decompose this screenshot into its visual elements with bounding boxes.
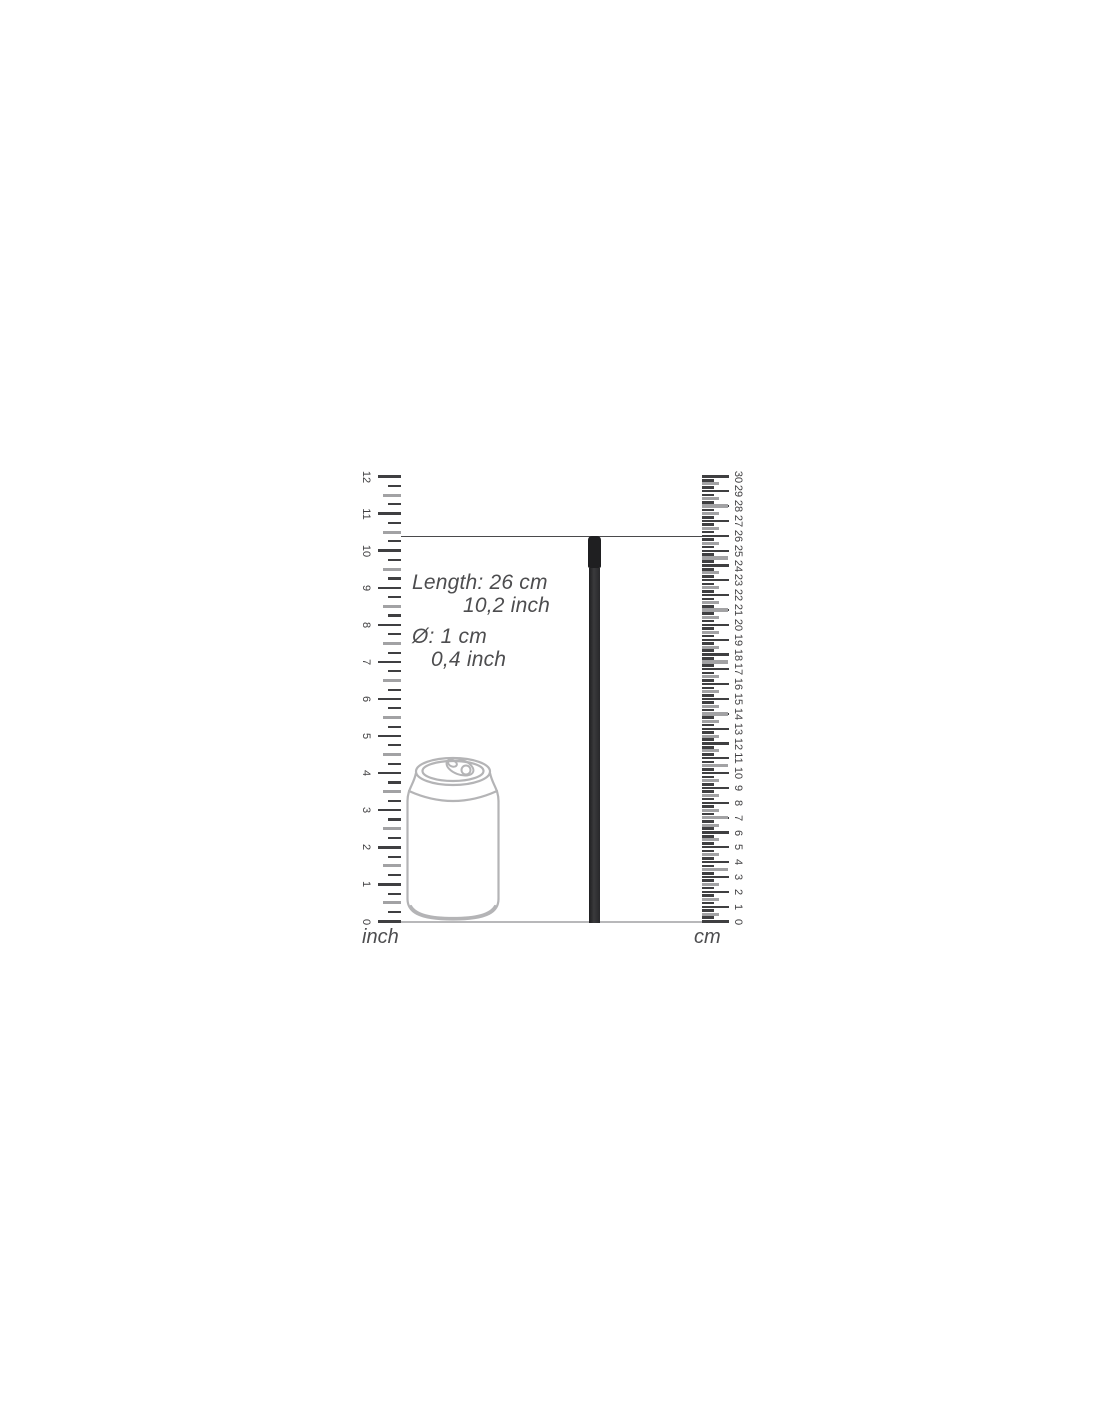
ruler-tick xyxy=(702,731,714,734)
ruler-tick xyxy=(702,687,714,690)
ruler-tick xyxy=(702,824,719,827)
ruler-tick xyxy=(702,846,729,848)
ruler-tick xyxy=(702,701,714,704)
product-size-diagram: 0123456789101112 01234567891011121314151… xyxy=(0,0,1100,1422)
ruler-tick xyxy=(702,712,728,715)
ruler-tick xyxy=(702,631,719,634)
ruler-tick xyxy=(702,627,714,630)
ruler-tick xyxy=(702,639,729,641)
ruler-tick xyxy=(702,538,714,541)
ruler-tick xyxy=(702,501,714,504)
ruler-tick xyxy=(702,850,714,853)
ruler-tick xyxy=(702,564,729,566)
ruler-tick xyxy=(702,571,719,574)
ruler-tick xyxy=(702,783,714,786)
ruler-tick xyxy=(702,920,729,922)
ruler-tick xyxy=(702,601,719,604)
ruler-tick xyxy=(702,853,719,856)
can-shoulder-right xyxy=(490,773,499,801)
ruler-tick xyxy=(702,542,719,545)
ruler-tick xyxy=(702,556,728,559)
ruler-tick xyxy=(702,479,714,482)
inch-unit-label: inch xyxy=(362,926,399,949)
ruler-tick xyxy=(702,809,719,812)
ruler-tick xyxy=(702,861,729,863)
ruler-tick xyxy=(702,520,729,522)
ruler-tick xyxy=(702,883,719,886)
cm-ruler: 0123456789101112131415161718192021222324… xyxy=(0,0,1100,1422)
ruler-tick xyxy=(702,816,728,819)
ruler-tick xyxy=(702,709,714,712)
cm-unit-label: cm xyxy=(694,926,721,949)
ruler-tick xyxy=(702,906,729,908)
ruler-tick xyxy=(702,568,714,571)
ruler-tick xyxy=(702,583,714,586)
ruler-tick xyxy=(702,842,714,845)
ruler-tick xyxy=(702,728,729,730)
ruler-tick xyxy=(702,916,714,919)
ruler-tick xyxy=(702,749,719,752)
ruler-tick xyxy=(702,757,729,759)
diameter-inch-label: 0,4 inch xyxy=(431,648,506,672)
ruler-tick xyxy=(702,660,728,663)
ruler-tick xyxy=(702,820,714,823)
ruler-tick xyxy=(702,872,714,875)
ruler-tick xyxy=(702,787,729,789)
ruler-tick xyxy=(702,598,714,601)
ruler-tick xyxy=(702,620,714,623)
length-inch-label: 10,2 inch xyxy=(463,594,550,618)
ruler-tick xyxy=(702,512,719,515)
ruler-tick xyxy=(702,764,728,767)
ruler-tick xyxy=(702,805,714,808)
ruler-tick xyxy=(702,675,719,678)
product-rod-shaft xyxy=(589,568,600,923)
ruler-tick xyxy=(702,902,714,905)
ruler-tick xyxy=(702,683,729,685)
ruler-tick xyxy=(702,586,719,589)
ruler-tick xyxy=(702,761,714,764)
ruler-tick xyxy=(702,738,714,741)
ruler-tick xyxy=(702,579,729,581)
ruler-tick xyxy=(702,894,714,897)
ruler-tick xyxy=(702,879,714,882)
diameter-cm-label: Ø: 1 cm xyxy=(412,625,487,649)
ruler-tick xyxy=(702,531,714,534)
ruler-tick xyxy=(702,550,729,552)
ruler-tick xyxy=(702,865,714,868)
ruler-tick xyxy=(702,616,719,619)
ruler-tick xyxy=(702,590,714,593)
ruler-tick xyxy=(702,653,729,655)
ruler-tick xyxy=(702,575,714,578)
ruler-tick xyxy=(702,672,714,675)
ruler-tick xyxy=(702,546,714,549)
can-neck-arc xyxy=(409,791,497,801)
ruler-tick xyxy=(702,594,729,596)
ruler-tick xyxy=(702,516,714,519)
ruler-tick xyxy=(702,838,719,841)
ruler-tick xyxy=(702,527,719,530)
ruler-tick xyxy=(702,913,719,916)
ruler-tick xyxy=(702,813,714,816)
ruler-tick xyxy=(702,898,719,901)
soda-can-illustration xyxy=(406,755,501,923)
ruler-tick xyxy=(702,535,729,537)
ruler-tick xyxy=(702,794,719,797)
ruler-tick xyxy=(702,887,714,890)
ruler-tick xyxy=(702,768,714,771)
ruler-tick xyxy=(702,753,714,756)
ruler-tick xyxy=(702,798,714,801)
ruler-tick xyxy=(702,835,714,838)
ruler-tick xyxy=(702,482,719,485)
ruler-tick xyxy=(702,475,729,477)
ruler-tick xyxy=(702,735,719,738)
ruler-tick xyxy=(702,509,714,512)
ruler-tick xyxy=(702,612,714,615)
ruler-tick xyxy=(702,742,729,744)
product-rod-tip xyxy=(588,536,601,568)
ruler-tick xyxy=(702,560,714,563)
ruler-tick xyxy=(702,827,714,830)
ruler-tick xyxy=(702,608,728,611)
can-outline xyxy=(408,755,499,919)
ruler-tick xyxy=(702,720,719,723)
ruler-tick xyxy=(702,698,729,700)
ruler-tick xyxy=(702,716,714,719)
ruler-tick xyxy=(702,649,714,652)
length-cm-label: Length: 26 cm xyxy=(412,571,548,595)
can-shoulder-left xyxy=(408,773,417,801)
ruler-tick xyxy=(702,779,719,782)
ruler-number: 30 xyxy=(728,467,748,487)
ruler-tick xyxy=(702,490,729,492)
can-bottom-outer xyxy=(408,899,499,920)
ruler-tick xyxy=(702,679,714,682)
ruler-tick xyxy=(702,705,719,708)
ruler-tick xyxy=(702,724,714,727)
ruler-tick xyxy=(702,668,729,670)
ruler-tick xyxy=(702,494,714,497)
ruler-tick xyxy=(702,891,729,893)
ruler-tick xyxy=(702,642,714,645)
ruler-tick xyxy=(702,646,719,649)
ruler-tick xyxy=(702,772,729,774)
ruler-tick xyxy=(702,605,714,608)
ruler-tick xyxy=(702,802,729,804)
ruler-tick xyxy=(702,857,714,860)
ruler-tick xyxy=(702,831,729,833)
ruler-tick xyxy=(702,497,719,500)
ruler-tick xyxy=(702,624,729,626)
product-rod xyxy=(588,536,601,923)
ruler-tick xyxy=(702,909,714,912)
ruler-tick xyxy=(702,657,714,660)
ruler-tick xyxy=(702,868,728,871)
length-indicator-line xyxy=(401,536,702,538)
ruler-tick xyxy=(702,790,714,793)
ruler-tick xyxy=(702,746,714,749)
ruler-tick xyxy=(702,635,714,638)
ruler-tick xyxy=(702,876,729,878)
ruler-tick xyxy=(702,776,714,779)
ruler-tick xyxy=(702,694,714,697)
ruler-tick xyxy=(702,486,714,489)
ruler-tick xyxy=(702,664,714,667)
ruler-tick xyxy=(702,553,714,556)
ruler-tick xyxy=(702,504,728,507)
ruler-tick xyxy=(702,523,714,526)
ruler-tick xyxy=(702,690,719,693)
